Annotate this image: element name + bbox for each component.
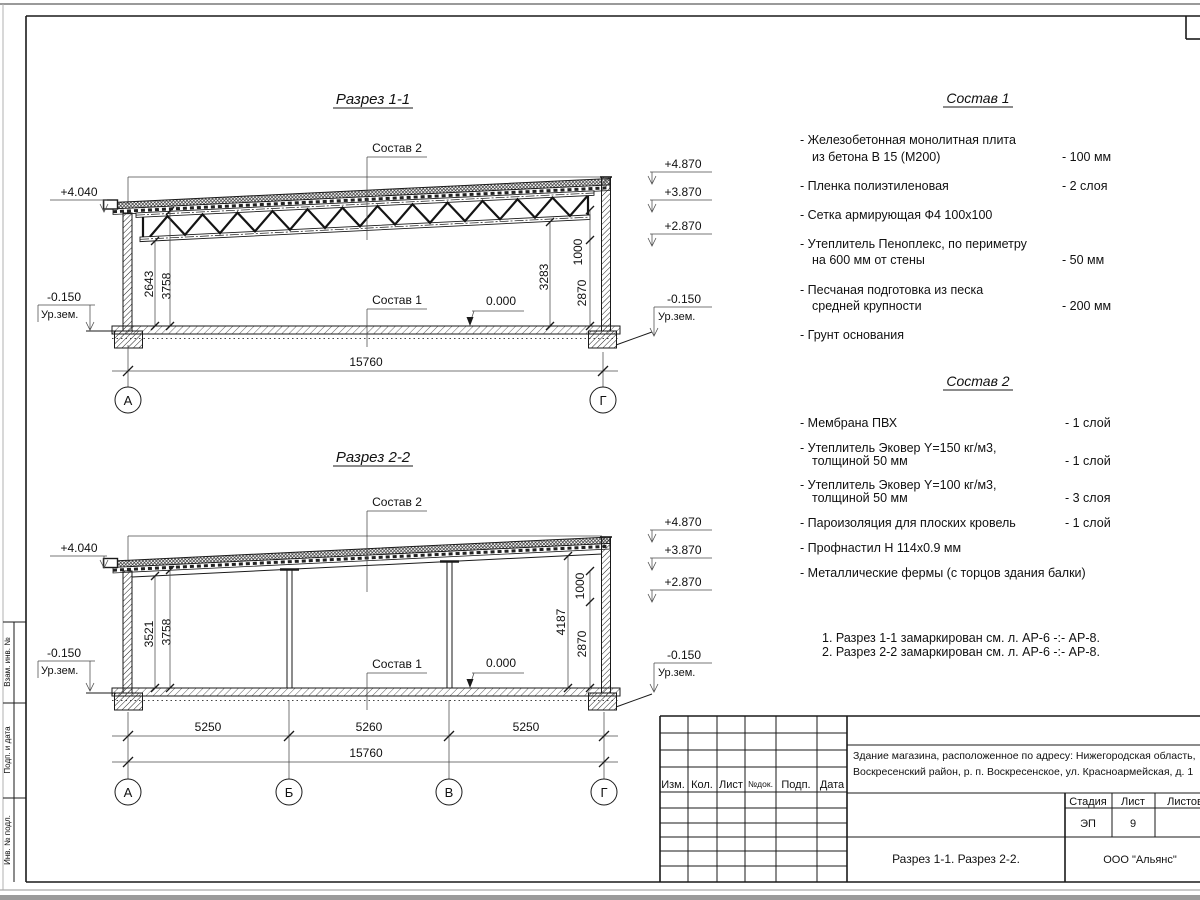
svg-text:-0.150: -0.150 xyxy=(47,290,81,304)
svg-text:- Песчаная подготовка из песка: - Песчаная подготовка из песка xyxy=(800,283,983,297)
drawing-sheet: { "section1": { "title": "Разрез 1-1", "… xyxy=(0,0,1200,900)
side-stamp-label-1: Взам. инв. № xyxy=(3,637,12,687)
section2-left-wall xyxy=(123,571,132,693)
svg-text:1000: 1000 xyxy=(573,572,587,599)
svg-text:5250: 5250 xyxy=(195,720,222,734)
section2-span-dims: 5250 5260 5250 15760 xyxy=(112,700,618,779)
col-list: Лист xyxy=(719,779,743,791)
section1-dims-right: 3283 1000 2870 xyxy=(537,206,594,330)
col-data: Дата xyxy=(820,779,845,791)
col-ndok: №док. xyxy=(748,779,773,789)
spec1-panel: Состав 1 - Железобетонная монолитная пли… xyxy=(800,90,1111,342)
sheet-number: 9 xyxy=(1130,818,1136,830)
svg-text:Г: Г xyxy=(600,785,607,800)
notes: 1. Разрез 1-1 замаркирован см. л. АР-6 -… xyxy=(822,631,1100,659)
svg-text:- 1 слой: - 1 слой xyxy=(1065,416,1111,430)
svg-text:+4.870: +4.870 xyxy=(664,515,701,529)
section2-floor xyxy=(86,688,652,710)
svg-text:- 100 мм: - 100 мм xyxy=(1062,150,1111,164)
title-block: Изм. Кол. Лист №док. Подп. Дата Здание м… xyxy=(660,716,1200,882)
svg-text:1000: 1000 xyxy=(571,238,585,265)
svg-text:+2.870: +2.870 xyxy=(664,575,701,589)
section2-roof-leader: Состав 2 xyxy=(367,495,427,592)
section1-right-footing xyxy=(589,331,617,348)
svg-text:0.000: 0.000 xyxy=(486,294,516,308)
svg-text:- Грунт основания: - Грунт основания xyxy=(800,328,904,342)
svg-text:Б: Б xyxy=(285,785,294,800)
section2-elev-right-ground: -0.150 Ур.зем. xyxy=(650,648,712,692)
svg-text:- Мембрана ПВХ: - Мембрана ПВХ xyxy=(800,416,898,430)
svg-text:- 1 слой: - 1 слой xyxy=(1065,516,1111,530)
svg-text:толщиной 50 мм: толщиной 50 мм xyxy=(812,454,908,468)
svg-text:- Металлические фермы (с торцо: - Металлические фермы (с торцов здания б… xyxy=(800,566,1086,580)
section1-title: Разрез 1-1 xyxy=(336,91,410,108)
svg-text:- Утеплитель Эковер Y=150 кг/м: - Утеплитель Эковер Y=150 кг/м3, xyxy=(800,441,996,455)
object-line2: Воскресенский район, р. п. Воскресенское… xyxy=(853,766,1193,778)
section2-right-wall xyxy=(602,537,611,693)
section1-elev-right: +4.870 +3.870 +2.870 xyxy=(648,157,712,246)
spec1-title: Состав 1 xyxy=(946,90,1009,106)
svg-text:из бетона В 15 (М200): из бетона В 15 (М200) xyxy=(812,150,940,164)
svg-text:- Профнастил Н 114х0.9 мм: - Профнастил Н 114х0.9 мм xyxy=(800,541,961,555)
section1-elev-left-top: +4.040 xyxy=(50,185,108,212)
section1-axis-a: А xyxy=(115,387,141,413)
company-name: ООО "Альянс" xyxy=(1103,854,1177,866)
stage-value: ЭП xyxy=(1080,818,1096,830)
svg-text:+2.870: +2.870 xyxy=(664,219,701,233)
svg-text:15760: 15760 xyxy=(349,355,383,369)
svg-text:- 1 слой: - 1 слой xyxy=(1065,454,1111,468)
stage-label: Стадия xyxy=(1069,796,1107,808)
sheets-label: Листов xyxy=(1167,796,1200,808)
svg-text:-0.150: -0.150 xyxy=(667,292,701,306)
svg-text:Состав 2: Состав 2 xyxy=(372,495,422,509)
svg-text:3758: 3758 xyxy=(160,272,174,299)
section2-elev-left-top: +4.040 xyxy=(50,541,108,568)
section2-column-v xyxy=(440,562,459,689)
svg-text:Состав 1: Состав 1 xyxy=(372,657,422,671)
spec2-panel: Состав 2 - Мембрана ПВХ - 1 слой - Утепл… xyxy=(800,373,1111,580)
section1-right-wall xyxy=(602,177,611,331)
section1-overall-dim: 15760 xyxy=(112,345,618,387)
svg-text:-0.150: -0.150 xyxy=(47,646,81,660)
svg-text:+4.040: +4.040 xyxy=(60,185,97,199)
svg-text:15760: 15760 xyxy=(349,746,383,760)
col-podp: Подп. xyxy=(781,779,810,791)
svg-text:2870: 2870 xyxy=(575,279,589,306)
svg-text:на 600 мм от стены: на 600 мм от стены xyxy=(812,253,925,267)
sheet-label: Лист xyxy=(1121,796,1145,808)
spec2-title: Состав 2 xyxy=(946,373,1009,389)
svg-text:- Утеплитель Пеноплекс, по пер: - Утеплитель Пеноплекс, по периметру xyxy=(800,237,1028,251)
svg-text:3758: 3758 xyxy=(160,618,174,645)
svg-text:3283: 3283 xyxy=(537,263,551,290)
svg-text:- 200 мм: - 200 мм xyxy=(1062,299,1111,313)
svg-text:- Сетка армирующая Ф4 100х100: - Сетка армирующая Ф4 100х100 xyxy=(800,208,992,222)
svg-text:3521: 3521 xyxy=(142,620,156,647)
section2-dims-left: 3521 3758 xyxy=(142,566,174,692)
section2-title: Разрез 2-2 xyxy=(336,449,411,466)
section1-dims-left: 2643 3758 xyxy=(142,207,174,330)
section2-right-footing xyxy=(589,693,617,710)
note-1: 1. Разрез 1-1 замаркирован см. л. АР-6 -… xyxy=(822,631,1100,645)
ground-level-label: Ур.зем. xyxy=(41,309,78,321)
section1-axis-g: Г xyxy=(590,387,616,413)
svg-text:0.000: 0.000 xyxy=(486,656,516,670)
object-line1: Здание магазина, расположенное по адресу… xyxy=(853,750,1196,762)
section1-left-wall xyxy=(123,213,132,331)
col-kol: Кол. xyxy=(691,779,713,791)
svg-text:Ур.зем.: Ур.зем. xyxy=(658,667,695,679)
section1-floor-label: Состав 1 xyxy=(372,293,422,307)
svg-text:5260: 5260 xyxy=(356,720,383,734)
roof-left-cap xyxy=(104,559,118,568)
side-stamp: Взам. инв. № Подп. и дата Инв. № подл. xyxy=(3,622,26,882)
svg-text:Ур.зем.: Ур.зем. xyxy=(41,665,78,677)
svg-text:А: А xyxy=(124,393,133,408)
svg-text:2643: 2643 xyxy=(142,270,156,297)
side-stamp-label-3: Инв. № подл. xyxy=(3,815,12,865)
svg-text:- Пленка полиэтиленовая: - Пленка полиэтиленовая xyxy=(800,179,949,193)
svg-text:- Пароизоляция для плоских кро: - Пароизоляция для плоских кровель xyxy=(800,516,1016,530)
section2-axes: А Б В Г xyxy=(115,779,617,805)
sheet-canvas: Взам. инв. № Подп. и дата Инв. № подл. Р… xyxy=(0,0,1200,900)
svg-text:- 2 слоя: - 2 слоя xyxy=(1062,179,1107,193)
section2-elev-left-ground: -0.150 Ур.зем. xyxy=(38,646,95,691)
svg-text:+3.870: +3.870 xyxy=(664,185,701,199)
svg-text:- Железобетонная монолитная п: - Железобетонная монолитная плита xyxy=(800,133,1016,147)
svg-text:+4.870: +4.870 xyxy=(664,157,701,171)
section2-left-footing xyxy=(115,693,143,710)
svg-text:Г: Г xyxy=(599,393,606,408)
section1-roof-label: Состав 2 xyxy=(372,141,422,155)
svg-text:-0.150: -0.150 xyxy=(667,648,701,662)
svg-text:+4.040: +4.040 xyxy=(60,541,97,555)
section2-column-b xyxy=(280,570,299,689)
roof-left-cap xyxy=(104,200,118,209)
section1-zero-mark: 0.000 xyxy=(467,294,525,326)
svg-text:2870: 2870 xyxy=(575,630,589,657)
svg-text:- 50 мм: - 50 мм xyxy=(1062,253,1104,267)
svg-text:5250: 5250 xyxy=(513,720,540,734)
svg-text:- 3 слоя: - 3 слоя xyxy=(1065,491,1110,505)
section2-elev-right: +4.870 +3.870 +2.870 xyxy=(648,515,712,602)
section-1-1: Разрез 1-1 xyxy=(38,91,712,413)
svg-text:+3.870: +3.870 xyxy=(664,543,701,557)
svg-text:- Утеплитель Эковер Y=100 кг/м: - Утеплитель Эковер Y=100 кг/м3, xyxy=(800,478,996,492)
note-2: 2. Разрез 2-2 замаркирован см. л. АР-6 -… xyxy=(822,645,1100,659)
section1-left-footing xyxy=(115,331,143,348)
section2-roof xyxy=(104,537,613,573)
section1-elev-right-ground: -0.150 Ур.зем. xyxy=(650,292,712,336)
side-stamp-label-2: Подп. и дата xyxy=(3,726,12,774)
section2-dims-right: 4187 1000 2870 xyxy=(554,552,594,692)
col-izm: Изм. xyxy=(661,779,685,791)
svg-text:толщиной 50 мм: толщиной 50 мм xyxy=(812,491,908,505)
section1-floor xyxy=(86,326,652,348)
section-2-2: Разрез 2-2 xyxy=(38,449,712,805)
corner-format-box xyxy=(1186,16,1200,39)
svg-text:А: А xyxy=(124,785,133,800)
section2-floor-leader: Состав 1 xyxy=(367,657,427,710)
svg-text:4187: 4187 xyxy=(554,608,568,635)
section1-elev-left-ground: -0.150 Ур.зем. xyxy=(38,290,95,330)
svg-text:средней крупности: средней крупности xyxy=(812,299,922,313)
doc-title: Разрез 1-1. Разрез 2-2. xyxy=(892,852,1020,866)
svg-text:Ур.зем.: Ур.зем. xyxy=(658,311,695,323)
svg-text:В: В xyxy=(445,785,454,800)
section2-zero-mark: 0.000 xyxy=(467,656,525,688)
